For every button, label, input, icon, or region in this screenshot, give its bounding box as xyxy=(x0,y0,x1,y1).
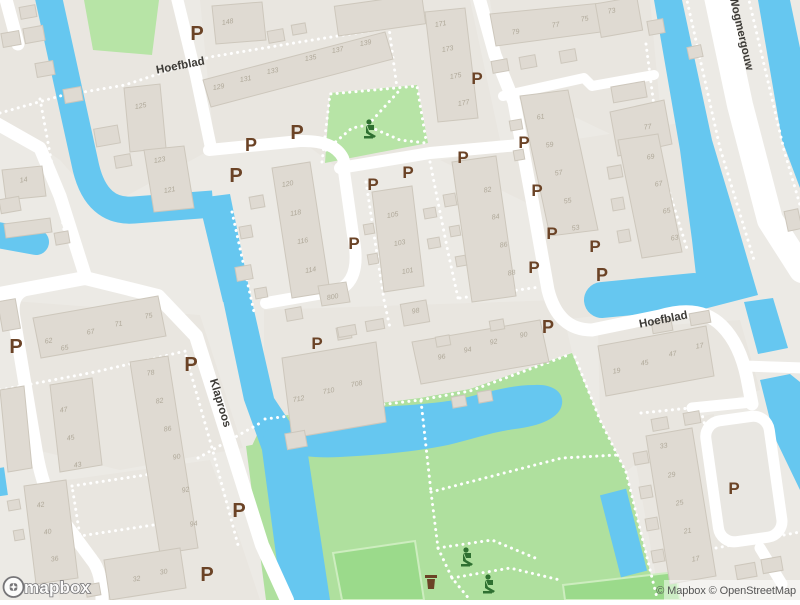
svg-text:61: 61 xyxy=(536,113,545,121)
svg-text:P: P xyxy=(348,234,359,253)
svg-text:75: 75 xyxy=(144,312,153,320)
svg-text:45: 45 xyxy=(66,434,75,442)
svg-text:30: 30 xyxy=(159,568,168,576)
svg-text:86: 86 xyxy=(499,241,508,249)
svg-text:92: 92 xyxy=(181,486,190,494)
svg-text:P: P xyxy=(471,69,482,88)
svg-text:92: 92 xyxy=(489,338,498,346)
svg-text:42: 42 xyxy=(36,501,45,509)
svg-text:P: P xyxy=(402,163,413,182)
svg-text:P: P xyxy=(184,354,197,376)
svg-text:62: 62 xyxy=(44,337,53,345)
svg-text:33: 33 xyxy=(659,442,668,450)
svg-text:71: 71 xyxy=(114,320,123,328)
svg-text:40: 40 xyxy=(43,528,52,536)
svg-text:43: 43 xyxy=(73,461,82,469)
svg-text:84: 84 xyxy=(491,213,500,221)
svg-text:P: P xyxy=(200,564,213,586)
svg-text:P: P xyxy=(589,237,600,256)
svg-text:65: 65 xyxy=(662,207,671,215)
svg-text:P: P xyxy=(542,317,554,337)
svg-text:36: 36 xyxy=(50,555,59,563)
svg-text:P: P xyxy=(518,133,529,152)
svg-text:P: P xyxy=(290,122,303,144)
svg-text:45: 45 xyxy=(640,359,649,367)
svg-text:94: 94 xyxy=(189,520,198,528)
svg-text:P: P xyxy=(232,500,245,522)
svg-text:P: P xyxy=(9,336,22,358)
svg-text:P: P xyxy=(546,224,557,243)
svg-text:88: 88 xyxy=(507,269,516,277)
svg-text:P: P xyxy=(531,181,542,200)
svg-text:P: P xyxy=(311,334,322,353)
svg-text:82: 82 xyxy=(483,186,492,194)
svg-text:90: 90 xyxy=(519,331,528,339)
svg-text:mapbox: mapbox xyxy=(24,578,91,597)
svg-text:P: P xyxy=(190,23,203,45)
svg-text:86: 86 xyxy=(163,425,172,433)
svg-text:© Mapbox © OpenStreetMap: © Mapbox © OpenStreetMap xyxy=(656,585,796,597)
svg-text:79: 79 xyxy=(511,28,520,36)
svg-text:59: 59 xyxy=(545,141,554,149)
svg-text:53: 53 xyxy=(571,224,580,232)
svg-text:P: P xyxy=(728,479,739,498)
svg-text:90: 90 xyxy=(172,453,181,461)
svg-text:P: P xyxy=(229,165,242,187)
svg-text:65: 65 xyxy=(60,344,69,352)
svg-text:P: P xyxy=(528,258,539,277)
svg-text:75: 75 xyxy=(580,15,589,23)
svg-text:32: 32 xyxy=(132,575,141,583)
svg-text:19: 19 xyxy=(612,367,621,375)
svg-text:69: 69 xyxy=(646,153,655,161)
svg-text:P: P xyxy=(457,148,468,167)
svg-text:P: P xyxy=(367,175,378,194)
svg-text:P: P xyxy=(596,265,608,285)
svg-text:63: 63 xyxy=(670,234,679,242)
svg-text:14: 14 xyxy=(19,176,28,184)
svg-text:73: 73 xyxy=(607,7,616,15)
svg-text:78: 78 xyxy=(146,369,155,377)
svg-text:98: 98 xyxy=(411,307,420,315)
svg-text:55: 55 xyxy=(563,197,572,205)
svg-text:94: 94 xyxy=(463,346,472,354)
svg-text:P: P xyxy=(245,135,257,155)
svg-text:82: 82 xyxy=(155,397,164,405)
svg-text:96: 96 xyxy=(437,353,446,361)
